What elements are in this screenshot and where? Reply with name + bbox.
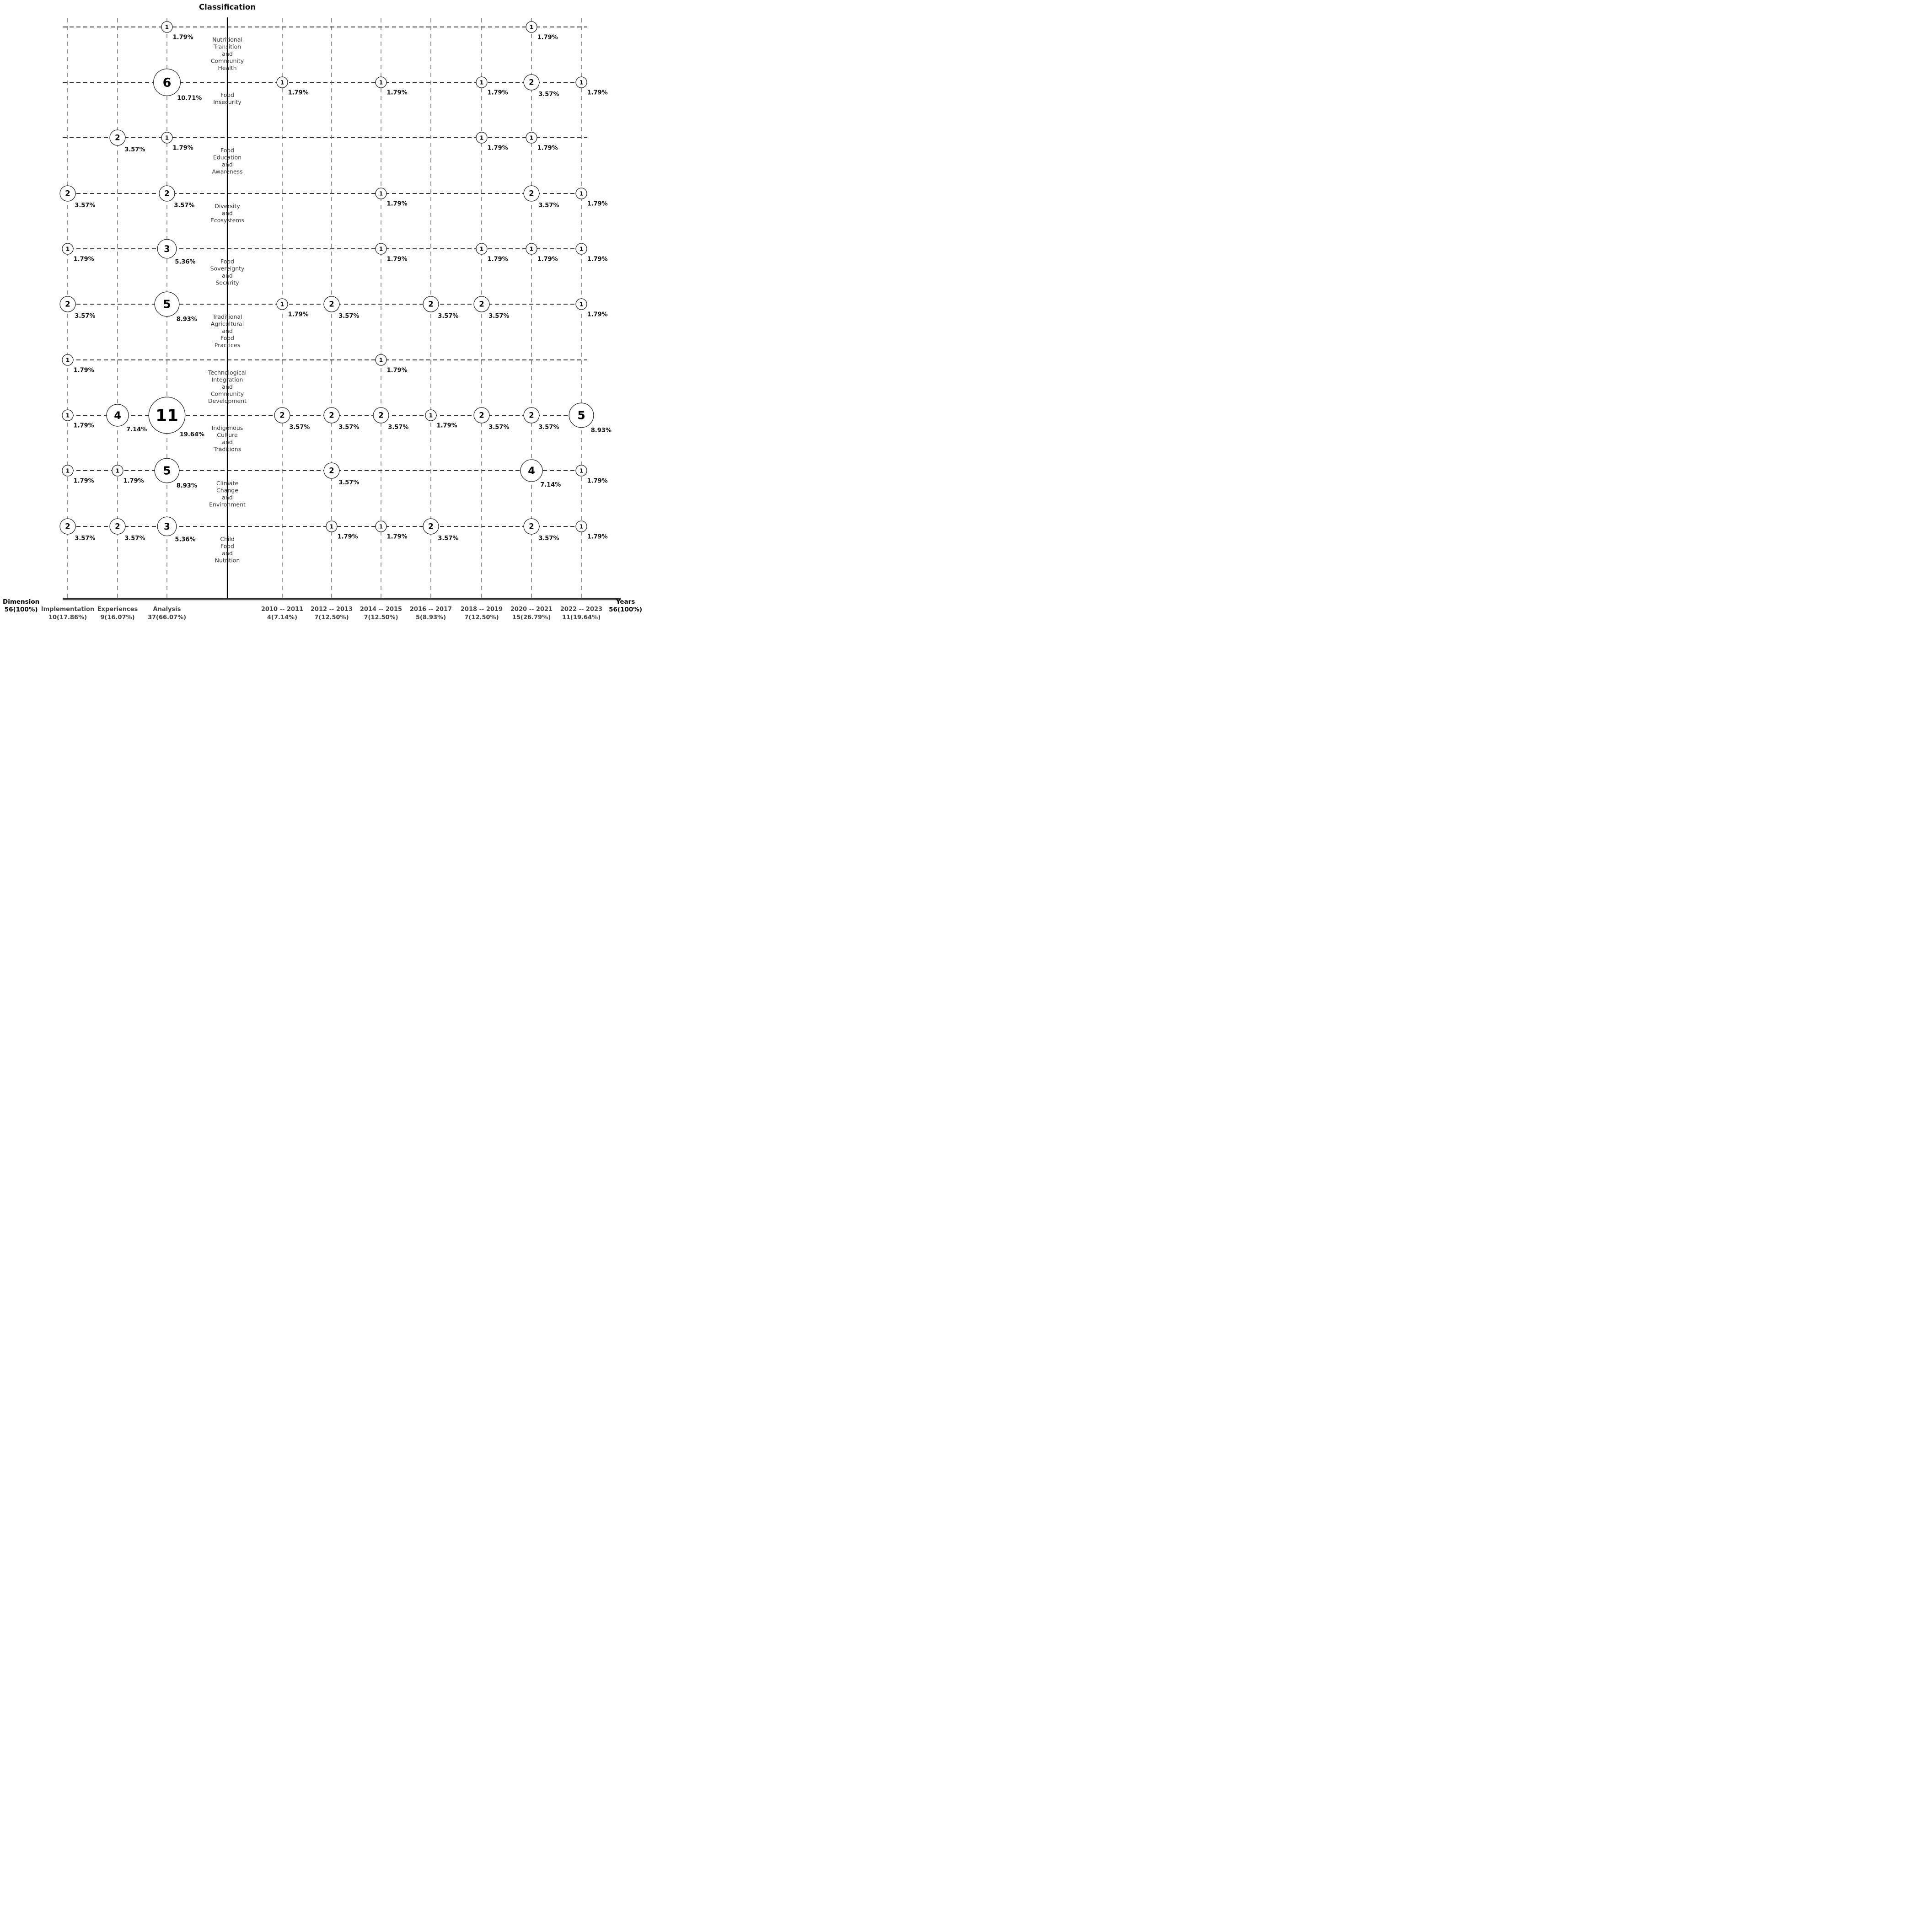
bubble-count: 1 bbox=[580, 246, 583, 252]
category-label-line: Agricultural bbox=[211, 321, 244, 327]
bubble-pct: 19.64% bbox=[180, 431, 204, 438]
bubble-count: 2 bbox=[428, 522, 433, 531]
bubble-count: 1 bbox=[580, 79, 583, 86]
bubble-pct: 7.14% bbox=[540, 482, 561, 488]
bubble-count: 1 bbox=[530, 134, 533, 141]
bubble-pct: 1.79% bbox=[587, 477, 608, 484]
bubble-count: 1 bbox=[530, 24, 533, 30]
bubble-count: 1 bbox=[280, 301, 284, 307]
bubble-pct: 1.79% bbox=[537, 145, 558, 151]
bubble-count: 1 bbox=[480, 246, 483, 252]
bubble-count: 2 bbox=[479, 411, 484, 420]
years-axis-title: Years 56(100%) bbox=[609, 598, 642, 614]
bubble-pct: 10.71% bbox=[177, 95, 202, 102]
category-label-line: and bbox=[222, 210, 233, 217]
bubble-count: 1 bbox=[165, 134, 169, 141]
bubble-pct: 1.79% bbox=[387, 89, 408, 96]
category-label-line: Food bbox=[220, 91, 234, 98]
column-footer-total-y2014_2015: 7(12.50%) bbox=[364, 614, 398, 621]
column-footer-total-y2010_2011: 4(7.14%) bbox=[267, 614, 297, 621]
column-footer-total-experiences: 9(16.07%) bbox=[100, 614, 134, 621]
bubble-pct: 7.14% bbox=[126, 426, 147, 433]
category-label-line: and bbox=[222, 272, 233, 279]
bubble-pct: 3.57% bbox=[174, 202, 194, 209]
category-label-line: Food bbox=[220, 147, 234, 154]
bubble-count: 2 bbox=[65, 300, 70, 309]
bubble-count: 11 bbox=[156, 407, 178, 425]
category-label-line: Environment bbox=[209, 501, 246, 508]
bubble-count: 1 bbox=[116, 467, 119, 474]
bubble-pct: 1.79% bbox=[488, 145, 508, 151]
column-footer-label-analysis: Analysis bbox=[153, 606, 181, 613]
category-label-line: Food bbox=[220, 258, 234, 265]
bubble-pct: 1.79% bbox=[537, 256, 558, 263]
bubble-pct: 1.79% bbox=[288, 311, 309, 318]
column-footer-total-y2016_2017: 5(8.93%) bbox=[416, 614, 446, 621]
category-label-line: Education bbox=[213, 154, 241, 161]
category-label-line: Climate bbox=[216, 480, 238, 487]
category-label-line: and bbox=[222, 494, 233, 501]
category-label-line: Nutritional bbox=[212, 36, 242, 43]
bubble-pct: 1.79% bbox=[437, 422, 457, 429]
column-footer-total-y2022_2023: 11(19.64%) bbox=[562, 614, 601, 621]
category-label-line: Development bbox=[208, 397, 247, 404]
bubble-pct: 3.57% bbox=[75, 535, 95, 542]
category-label-line: Transition bbox=[213, 43, 241, 50]
bubble-pct: 3.57% bbox=[75, 313, 95, 320]
category-label-line: and bbox=[222, 383, 233, 390]
bubble-pct: 1.79% bbox=[74, 477, 94, 484]
bubble-pct: 1.79% bbox=[587, 256, 608, 263]
bubble-count: 1 bbox=[66, 357, 70, 363]
bubble-count: 2 bbox=[529, 78, 534, 87]
years-axis-total: 56(100%) bbox=[609, 606, 642, 614]
bubble-pct: 1.79% bbox=[288, 89, 309, 96]
bubble-pct: 3.57% bbox=[438, 535, 458, 542]
bubble-count: 1 bbox=[379, 357, 383, 363]
column-footer-label-y2016_2017: 2016 -- 2017 bbox=[410, 606, 452, 613]
bubble-pct: 1.79% bbox=[488, 89, 508, 96]
category-label-line: Practices bbox=[215, 342, 240, 348]
bubble-count: 1 bbox=[379, 246, 383, 252]
dimension-axis-label: Dimension bbox=[3, 598, 39, 606]
bubble-count: 1 bbox=[330, 523, 333, 530]
bubble-count: 2 bbox=[378, 411, 383, 420]
bubble-pct: 3.57% bbox=[488, 313, 509, 320]
bubble-pct: 3.57% bbox=[289, 424, 310, 431]
bubble-pct: 3.57% bbox=[438, 313, 458, 320]
category-label-line: Integration bbox=[212, 376, 243, 383]
bubble-pct: 3.57% bbox=[338, 424, 359, 431]
bubble-pct: 3.57% bbox=[538, 202, 559, 209]
bubble-count: 2 bbox=[529, 189, 534, 198]
bubble-pct: 3.57% bbox=[75, 202, 95, 209]
bubble-count: 2 bbox=[279, 411, 284, 420]
bubble-count: 2 bbox=[115, 522, 120, 531]
column-footer-total-analysis: 37(66.07%) bbox=[148, 614, 186, 621]
bubble-count: 1 bbox=[280, 79, 284, 86]
category-label-line: and bbox=[222, 161, 233, 168]
bubble-count: 1 bbox=[66, 467, 70, 474]
bubble-matrix-plot: 11.79%11.79%NutritionalTransitionandComm… bbox=[0, 0, 644, 638]
column-footer-total-y2020_2021: 15(26.79%) bbox=[512, 614, 551, 621]
category-label-line: Change bbox=[216, 487, 238, 494]
column-footer-label-y2012_2013: 2012 -- 2013 bbox=[311, 606, 353, 613]
bubble-count: 2 bbox=[329, 466, 334, 475]
bubble-count: 5 bbox=[163, 464, 171, 477]
category-label-line: Indigenous bbox=[212, 424, 243, 431]
bubble-count: 2 bbox=[529, 411, 534, 420]
category-label-line: Community bbox=[211, 391, 244, 397]
category-label-line: Health bbox=[218, 64, 236, 71]
bubble-count: 2 bbox=[329, 411, 334, 420]
bubble-pct: 1.79% bbox=[587, 533, 608, 540]
bubble-pct: 3.57% bbox=[338, 479, 359, 486]
category-label-line: and bbox=[222, 550, 233, 557]
bubble-pct: 3.57% bbox=[388, 424, 408, 431]
bubble-pct: 8.93% bbox=[177, 483, 197, 489]
bubble-pct: 1.79% bbox=[338, 533, 358, 540]
category-label-line: Insecurity bbox=[213, 99, 241, 106]
category-label-line: Nutrition bbox=[215, 557, 240, 564]
bubble-pct: 8.93% bbox=[177, 316, 197, 323]
column-footer-label-y2010_2011: 2010 -- 2011 bbox=[261, 606, 303, 613]
bubble-pct: 1.79% bbox=[173, 145, 193, 151]
column-footer-label-implementation: Implementation bbox=[41, 606, 94, 613]
category-label-line: Ecosystems bbox=[210, 217, 244, 224]
category-label-line: Technological bbox=[208, 369, 247, 376]
bubble-pct: 1.79% bbox=[74, 422, 94, 429]
bubble-count: 2 bbox=[164, 189, 169, 198]
bubble-count: 1 bbox=[580, 301, 583, 307]
category-label-line: and bbox=[222, 50, 233, 57]
bubble-pct: 3.57% bbox=[338, 313, 359, 320]
bubble-count: 1 bbox=[379, 190, 383, 197]
bubble-count: 1 bbox=[580, 190, 583, 197]
bubble-count: 3 bbox=[164, 244, 170, 254]
column-footer-label-experiences: Experiences bbox=[97, 606, 138, 613]
bubble-pct: 3.57% bbox=[488, 424, 509, 431]
bubble-count: 1 bbox=[429, 412, 433, 418]
bubble-pct: 1.79% bbox=[587, 200, 608, 207]
column-footer-total-implementation: 10(17.86%) bbox=[48, 614, 87, 621]
bubble-pct: 1.79% bbox=[488, 256, 508, 263]
bottom-axis-shadow bbox=[63, 600, 621, 600]
bubble-count: 1 bbox=[580, 523, 583, 530]
column-footer-total-y2012_2013: 7(12.50%) bbox=[314, 614, 349, 621]
bubble-count: 2 bbox=[65, 189, 70, 198]
bubble-pct: 1.79% bbox=[74, 256, 94, 263]
bubble-pct: 1.79% bbox=[74, 367, 94, 374]
bubble-pct: 1.79% bbox=[587, 311, 608, 318]
bubble-count: 2 bbox=[479, 300, 484, 309]
bubble-count: 2 bbox=[65, 522, 70, 531]
category-label-line: and bbox=[222, 327, 233, 334]
category-label-line: Food bbox=[220, 335, 234, 342]
bubble-count: 1 bbox=[165, 24, 169, 30]
bubble-pct: 1.79% bbox=[123, 477, 144, 484]
bubble-count: 1 bbox=[580, 467, 583, 474]
category-label-line: Community bbox=[211, 58, 244, 64]
bubble-pct: 3.57% bbox=[124, 146, 145, 153]
bubble-count: 2 bbox=[428, 300, 433, 309]
bubble-count: 1 bbox=[379, 79, 383, 86]
bubble-pct: 1.79% bbox=[387, 367, 408, 374]
category-label-line: Awareness bbox=[212, 168, 242, 175]
category-label-line: Diversity bbox=[215, 203, 240, 209]
classification-bubble-chart: Classification 11.79%11.79%NutritionalTr… bbox=[0, 0, 644, 638]
bottom-axis-line bbox=[63, 598, 621, 600]
bubble-count: 1 bbox=[530, 246, 533, 252]
bubble-pct: 3.57% bbox=[538, 424, 559, 431]
bubble-count: 5 bbox=[577, 409, 585, 422]
bubble-pct: 3.57% bbox=[124, 535, 145, 542]
bubble-count: 5 bbox=[163, 298, 171, 311]
bubble-count: 1 bbox=[480, 134, 483, 141]
dimension-axis-title: Dimension 56(100%) bbox=[3, 598, 39, 614]
bubble-pct: 3.57% bbox=[538, 91, 559, 98]
bubble-pct: 3.57% bbox=[538, 535, 559, 542]
bubble-count: 4 bbox=[528, 465, 535, 477]
category-label-line: Food bbox=[220, 543, 234, 550]
category-label-line: Security bbox=[215, 279, 239, 286]
bubble-count: 2 bbox=[529, 522, 534, 531]
bubble-pct: 1.79% bbox=[537, 34, 558, 41]
column-footer-total-y2018_2019: 7(12.50%) bbox=[464, 614, 499, 621]
dimension-axis-total: 56(100%) bbox=[3, 606, 39, 614]
category-label-line: Child bbox=[220, 536, 235, 542]
years-axis-label: Years bbox=[609, 598, 642, 606]
category-label-line: Sovereignty bbox=[210, 265, 245, 272]
bubble-pct: 1.79% bbox=[387, 533, 408, 540]
category-label-line: and bbox=[222, 439, 233, 445]
column-footer-label-y2022_2023: 2022 -- 2023 bbox=[560, 606, 602, 613]
category-label-line: Traditions bbox=[213, 446, 241, 453]
column-footer-label-y2018_2019: 2018 -- 2019 bbox=[461, 606, 503, 613]
bubble-pct: 1.79% bbox=[387, 200, 408, 207]
bubble-pct: 1.79% bbox=[587, 89, 608, 96]
bubble-count: 3 bbox=[164, 521, 170, 532]
bubble-count: 2 bbox=[329, 300, 334, 309]
bubble-count: 1 bbox=[66, 412, 70, 418]
bubble-count: 1 bbox=[480, 79, 483, 86]
bubble-pct: 5.36% bbox=[175, 259, 195, 266]
bubble-pct: 8.93% bbox=[591, 427, 612, 434]
category-label-line: Culture bbox=[217, 432, 238, 439]
bubble-pct: 5.36% bbox=[175, 536, 195, 543]
bubble-count: 2 bbox=[115, 134, 120, 142]
bubble-count: 6 bbox=[163, 75, 172, 90]
bubble-pct: 1.79% bbox=[387, 256, 408, 263]
column-footer-label-y2014_2015: 2014 -- 2015 bbox=[360, 606, 402, 613]
category-label-line: Traditional bbox=[212, 313, 242, 320]
bubble-pct: 1.79% bbox=[173, 34, 193, 41]
bubble-count: 1 bbox=[379, 523, 383, 530]
bubble-count: 1 bbox=[66, 246, 70, 252]
bubble-count: 4 bbox=[114, 410, 121, 422]
column-footer-label-y2020_2021: 2020 -- 2021 bbox=[510, 606, 553, 613]
